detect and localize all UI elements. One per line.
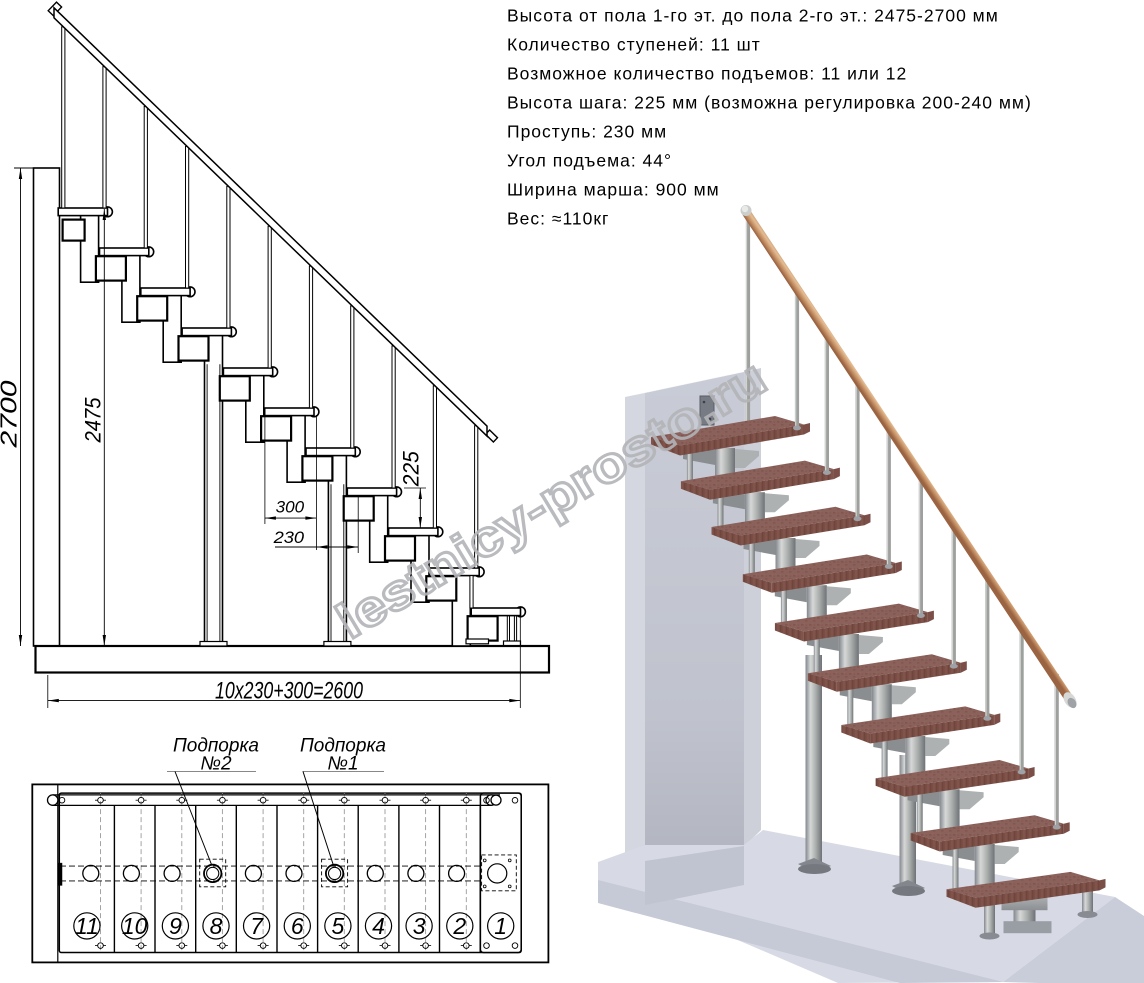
svg-text:5: 5: [332, 913, 345, 939]
svg-text:4: 4: [372, 913, 385, 939]
svg-text:Высота от пола 1-го эт. до пол: Высота от пола 1-го эт. до пола 2-го эт.…: [507, 6, 999, 26]
svg-text:3: 3: [413, 913, 426, 939]
svg-text:Угол подъема: 44°: Угол подъема: 44°: [507, 151, 672, 171]
svg-text:Возможное количество подъемов:: Возможное количество подъемов: 11 или 12: [507, 64, 907, 84]
svg-text:1: 1: [494, 913, 507, 939]
svg-text:9: 9: [169, 913, 182, 939]
svg-text:10: 10: [122, 913, 148, 939]
svg-text:6: 6: [291, 913, 304, 939]
svg-text:Количество ступеней: 11 шт: Количество ступеней: 11 шт: [507, 35, 761, 55]
svg-text:Вес: ≈110кг: Вес: ≈110кг: [507, 209, 609, 229]
svg-text:8: 8: [210, 913, 223, 939]
svg-text:2475: 2475: [81, 397, 106, 444]
svg-text:11: 11: [75, 913, 99, 939]
svg-text:10x230+300=2600: 10x230+300=2600: [215, 678, 363, 705]
svg-text:2: 2: [452, 913, 466, 939]
svg-text:225: 225: [399, 450, 424, 487]
svg-text:7: 7: [250, 913, 264, 939]
svg-text:2700: 2700: [0, 380, 22, 449]
svg-text:Ширина марша: 900 мм: Ширина марша: 900 мм: [507, 180, 720, 200]
svg-text:230: 230: [273, 528, 305, 547]
svg-text:300: 300: [276, 497, 305, 516]
svg-text:Высота шага: 225 мм (возможна: Высота шага: 225 мм (возможна регулировк…: [507, 93, 1032, 113]
svg-text:Проступь: 230 мм: Проступь: 230 мм: [507, 122, 667, 142]
